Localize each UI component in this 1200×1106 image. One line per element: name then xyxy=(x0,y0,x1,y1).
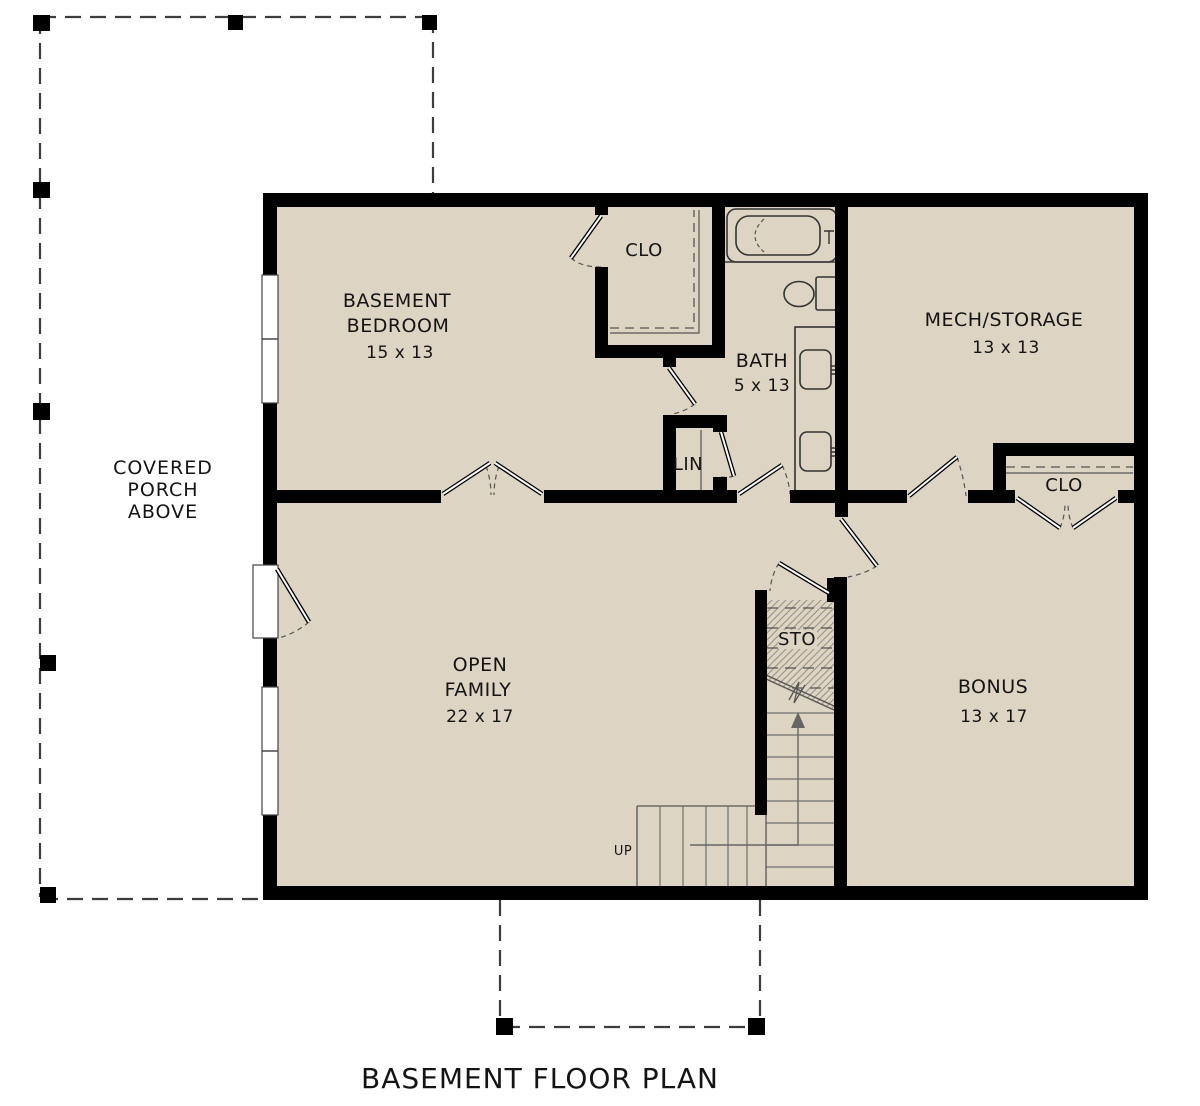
exterior-door-jamb xyxy=(253,565,278,638)
porch-post xyxy=(40,887,56,903)
up-label: UP xyxy=(614,844,632,859)
porch-post xyxy=(228,15,243,30)
bath-label: BATH xyxy=(736,350,788,372)
linen-label: LIN xyxy=(673,454,703,475)
porch-label-line3: ABOVE xyxy=(128,501,198,523)
family-label-line1: OPEN xyxy=(453,654,508,676)
porch-label-line1: COVERED xyxy=(113,457,213,479)
vanity-double-sink xyxy=(795,327,837,497)
porch-post xyxy=(33,182,50,198)
bedroom-label-line2: BEDROOM xyxy=(347,315,450,337)
family-label-line2: FAMILY xyxy=(445,679,512,701)
porch-post xyxy=(33,15,50,31)
basement-floor-plan-page: BASEMENT BEDROOM 15 x 13 CLO BATH 5 x 13… xyxy=(0,0,1200,1106)
bathtub xyxy=(727,209,837,262)
porch-label-line2: PORCH xyxy=(127,479,198,501)
porch-post xyxy=(422,15,437,30)
bedroom-dims: 15 x 13 xyxy=(366,343,434,363)
bath-dims: 5 x 13 xyxy=(734,376,790,396)
mech-storage-dims: 13 x 13 xyxy=(972,338,1040,358)
porch-post xyxy=(496,1018,513,1035)
family-dims: 22 x 17 xyxy=(446,707,514,727)
floor-plan-drawing: BASEMENT BEDROOM 15 x 13 CLO BATH 5 x 13… xyxy=(0,0,1200,1106)
bonus-label: BONUS xyxy=(958,676,1028,698)
sto-label: STO xyxy=(778,629,816,650)
lower-porch-outline xyxy=(496,900,765,1035)
porch-label: COVERED PORCH ABOVE xyxy=(113,457,213,523)
bonus-dims: 13 x 17 xyxy=(960,707,1028,727)
bonus-closet-label: CLO xyxy=(1045,475,1083,496)
plan-title: BASEMENT FLOOR PLAN xyxy=(361,1062,719,1095)
porch-post xyxy=(748,1018,765,1035)
porch-post xyxy=(40,655,56,671)
porch-post xyxy=(33,403,50,420)
mech-storage-label: MECH/STORAGE xyxy=(925,309,1084,331)
bedroom-label-line1: BASEMENT xyxy=(343,290,451,312)
bedroom-closet-label: CLO xyxy=(625,240,663,261)
